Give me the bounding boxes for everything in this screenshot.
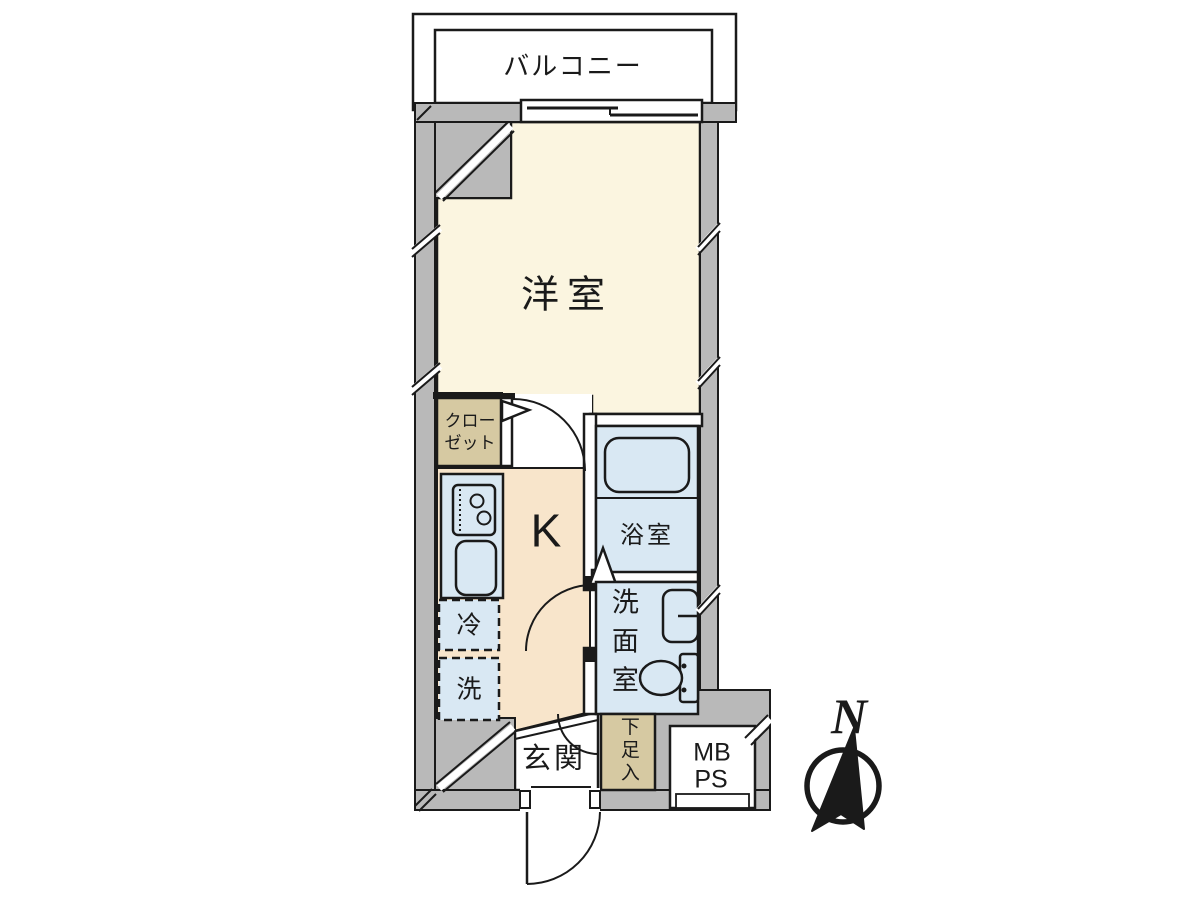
floor-plan-drawing (0, 0, 1200, 900)
western-room-label: 洋室 (521, 272, 613, 320)
wall-room-bathroom (590, 414, 702, 426)
wall-kitchen-bath-upper (584, 414, 596, 590)
shoe-cabinet-label: 下足入 (616, 717, 640, 786)
washer-space-label: 洗 (456, 674, 481, 705)
closet-label-line2: ゼット (445, 432, 496, 453)
closet-label-line1: クロー (445, 410, 496, 431)
entry-doorway-gap (520, 788, 600, 812)
entry-door-arc (527, 812, 600, 884)
bathroom-label: 浴室 (620, 521, 674, 551)
entrance-label: 玄関 (522, 741, 586, 777)
toilet-bowl (640, 661, 682, 695)
balcony-label: バルコニー (503, 50, 642, 83)
entry-door-post-right (590, 791, 600, 808)
toilet-detail-dot (682, 664, 687, 669)
entry-door-post-left (520, 791, 530, 808)
refrigerator-space-label: 冷 (456, 610, 481, 641)
wall-left (415, 122, 435, 810)
pipe-space-label: PS (694, 764, 727, 795)
bathtub (605, 438, 689, 492)
floor-plan: バルコニー 洋室 K クロー ゼット 浴室 洗面室 冷 洗 玄関 下足入 MB … (0, 0, 1200, 900)
toilet-detail-dot (682, 688, 687, 693)
wall-top-left (415, 103, 522, 122)
compass-north-label: N (831, 685, 867, 748)
washroom-label: 洗面室 (605, 588, 639, 705)
sliding-window (521, 100, 702, 122)
kitchen-sink (456, 541, 496, 595)
meter-box-hatch (676, 794, 749, 808)
kitchen-label: K (531, 502, 562, 560)
